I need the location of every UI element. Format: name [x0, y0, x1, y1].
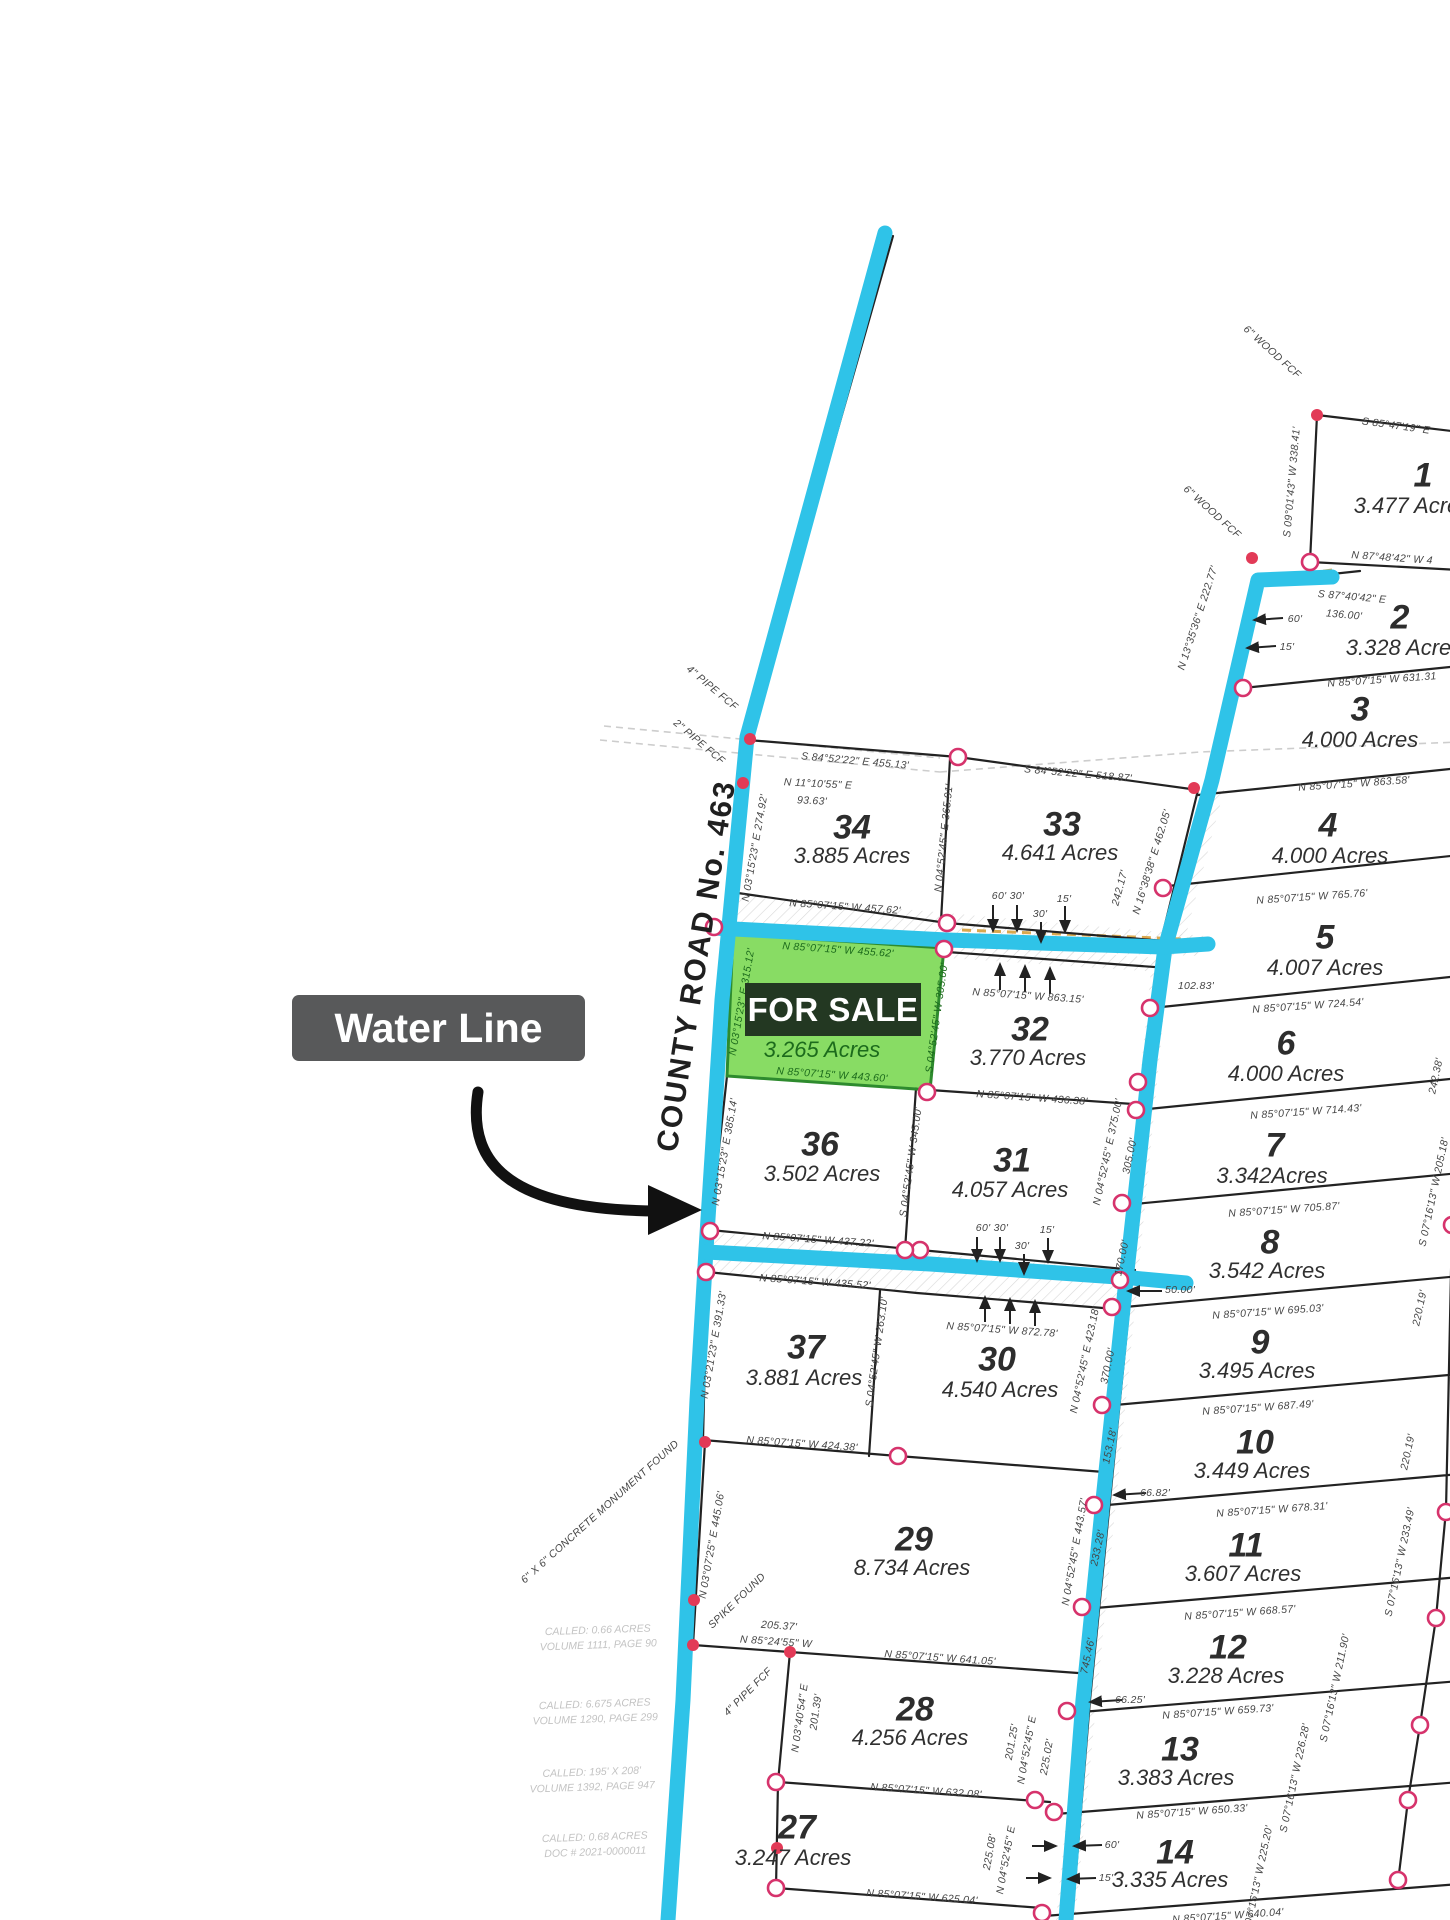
- bearing-label: 60' 30': [976, 1222, 1008, 1234]
- bearing-label: 60' 30': [992, 890, 1024, 902]
- bearing-label: 60': [1105, 1839, 1120, 1851]
- bearing-label: N 85°07'15" W 724.54': [1252, 996, 1364, 1016]
- lot-acres: 3.885 Acres: [794, 843, 911, 869]
- bearing-label: S 07°16'13" W 205.18': [1417, 1136, 1450, 1247]
- bearing-label: N 85°07'15" W 641.05': [884, 1648, 996, 1668]
- bearing-label: N 13°35'36" E 222.77': [1175, 564, 1220, 671]
- bearing-label: 136.00': [1325, 607, 1362, 622]
- bearing-label: 745.46': [1078, 1637, 1097, 1675]
- lot-acres: 4.641 Acres: [1002, 840, 1119, 866]
- bearing-label: N 85°07'15" W 765.76': [1256, 887, 1368, 907]
- bearing-label: N 85°07'15" W 863.58': [1298, 774, 1410, 794]
- bearing-label: 170.00': [1112, 1239, 1131, 1277]
- lot-acres: 3.383 Acres: [1118, 1765, 1235, 1791]
- bearing-label: N 85°07'15" W 437.22': [762, 1230, 874, 1250]
- bearing-label: 153.18': [1100, 1427, 1119, 1465]
- bearing-label: 15': [1099, 1872, 1114, 1884]
- plat-map: 13.477 Acres23.328 Acres34.000 Acres44.0…: [0, 0, 1450, 1920]
- bearing-label: N 85°07'15" W 659.73': [1162, 1702, 1274, 1722]
- bearing-label: 15': [1280, 641, 1295, 653]
- lot-number: 30: [978, 1341, 1016, 1380]
- lot-acres: 3.502 Acres: [764, 1161, 881, 1187]
- for-sale-acres: 3.265 Acres: [764, 1037, 881, 1063]
- lot-number: 36: [801, 1126, 839, 1165]
- lot-number: 7: [1266, 1127, 1285, 1166]
- bearing-label: 66.82': [1140, 1487, 1170, 1499]
- bearing-label: N 85°24'55" W: [740, 1633, 813, 1650]
- bearing-label: 30': [1015, 1240, 1030, 1252]
- lot-acres: 8.734 Acres: [854, 1555, 971, 1581]
- lot-number: 33: [1043, 806, 1081, 845]
- bearing-label: N 85°07'15" W 436.38': [976, 1088, 1088, 1108]
- lot-number: 8: [1261, 1224, 1280, 1263]
- lot-acres: 3.228 Acres: [1168, 1663, 1285, 1689]
- bearing-label: 370.00': [1098, 1347, 1117, 1385]
- lot-acres: 3.328 Acres: [1346, 635, 1450, 661]
- lot-acres: 3.247 Acres: [735, 1845, 852, 1871]
- lot-acres: 3.449 Acres: [1194, 1458, 1311, 1484]
- lot-acres: 4.540 Acres: [942, 1377, 1059, 1403]
- bearing-label: 242.38': [1426, 1057, 1445, 1095]
- bearing-label: 93.63': [797, 794, 828, 808]
- bearing-label: N 04°52'45" E 375.00': [1091, 1098, 1125, 1207]
- lot-number: 29: [895, 1521, 933, 1560]
- bearing-label: N 85°07'15" W 435.52': [759, 1272, 871, 1292]
- called-note: CALLED: 195' X 208'VOLUME 1392, PAGE 947: [529, 1763, 655, 1797]
- bearing-label: N 85°07'15" W 714.43': [1250, 1102, 1362, 1122]
- bearing-label: N 85°07'15" W 632.08': [870, 1781, 982, 1801]
- bearing-label: SPIKE FOUND: [706, 1571, 768, 1631]
- bearing-label: N 85°07'15" W 424.38': [746, 1434, 858, 1454]
- bearing-label: 220.19': [1398, 1433, 1417, 1471]
- lot-number: 9: [1251, 1324, 1270, 1363]
- bearing-label: 4" PIPE FCF: [684, 663, 740, 713]
- lot-acres: 4.000 Acres: [1228, 1061, 1345, 1087]
- bearing-label: N 85°07'15" W 640.04': [1172, 1906, 1284, 1920]
- bearing-label: 2" PIPE FCF: [671, 717, 727, 767]
- bearing-label: N 04°52'45" E 365.91': [932, 783, 955, 892]
- bearing-label: N 03°15'23" E 274.92': [740, 793, 771, 902]
- lot-acres: 3.607 Acres: [1185, 1561, 1302, 1587]
- lot-acres: 3.335 Acres: [1112, 1867, 1229, 1893]
- bearing-label: N 85°07'15" W 455.62': [782, 940, 894, 960]
- bearing-label: 66.25': [1115, 1694, 1145, 1706]
- bearing-label: 225.08': [981, 1833, 999, 1871]
- bearing-label: S 04°52'45" W 263.10': [863, 1296, 890, 1408]
- bearing-label: N 85°07'15" W 457.62': [789, 897, 901, 917]
- lot-number: 27: [778, 1809, 816, 1848]
- lot-number: 6: [1277, 1025, 1296, 1064]
- bearing-label: N 85°07'15" W 650.33': [1136, 1802, 1248, 1822]
- bearing-label: N 03°40'54" E: [789, 1683, 811, 1753]
- bearing-label: S 84°52'22" E 455.13': [801, 750, 910, 771]
- bearing-label: S 09°01'43" W 338.41': [1281, 426, 1303, 538]
- lot-acres: 3.770 Acres: [970, 1045, 1087, 1071]
- lot-number: 1: [1414, 457, 1433, 496]
- plat-text-layer: 13.477 Acres23.328 Acres34.000 Acres44.0…: [0, 0, 1450, 1920]
- bearing-label: S 85°47'19" E: [1361, 415, 1431, 436]
- bearing-label: N 11°10'55" E: [783, 776, 852, 792]
- water-line-callout: Water Line: [292, 995, 585, 1061]
- lot-number: 4: [1319, 807, 1338, 846]
- lot-acres: 4.256 Acres: [852, 1725, 969, 1751]
- bearing-label: N 85°07'15" W 668.57': [1184, 1603, 1296, 1623]
- lot-acres: 4.000 Acres: [1272, 843, 1389, 869]
- bearing-label: 30': [1033, 908, 1048, 920]
- bearing-label: 6" X 6" CONCRETE MONUMENT FOUND: [519, 1438, 682, 1586]
- bearing-label: S 07°16'13" W 233.49': [1383, 1506, 1418, 1617]
- bearing-label: N 85°07'15" W 631.31: [1327, 670, 1437, 690]
- bearing-label: 50.00': [1165, 1284, 1195, 1296]
- lot-number: 10: [1236, 1424, 1274, 1463]
- bearing-label: 225.02': [1038, 1738, 1056, 1776]
- lot-number: 32: [1011, 1011, 1049, 1050]
- lot-number: 13: [1161, 1731, 1199, 1770]
- lot-number: 12: [1209, 1629, 1247, 1668]
- bearing-label: N 03°07'25" E 445.06': [697, 1490, 728, 1599]
- bearing-label: N 85°07'15" W 443.60': [776, 1065, 888, 1085]
- lot-acres: 4.000 Acres: [1302, 727, 1419, 753]
- lot-acres: 4.007 Acres: [1267, 955, 1384, 981]
- bearing-label: S 84°52'22" E 518.87': [1024, 763, 1133, 784]
- bearing-label: N 16°38'38" E 462.05': [1130, 808, 1173, 915]
- called-note: CALLED: 0.66 ACRESVOLUME 1111, PAGE 90: [539, 1621, 657, 1654]
- bearing-label: N 87°48'42" W 4: [1351, 549, 1433, 567]
- bearing-label: 15': [1040, 1224, 1055, 1236]
- bearing-label: 60': [1288, 613, 1303, 625]
- lot-acres: 3.881 Acres: [746, 1365, 863, 1391]
- lot-number: 3: [1351, 691, 1370, 730]
- lot-acres: 3.542 Acres: [1209, 1258, 1326, 1284]
- bearing-label: 6" WOOD FCF: [1241, 323, 1303, 381]
- bearing-label: 201.39': [808, 1693, 825, 1731]
- bearing-label: 220.19': [1410, 1289, 1429, 1327]
- bearing-label: N 85°07'15" W 705.87': [1228, 1200, 1340, 1220]
- bearing-label: N 04°52'45" E 423.18': [1068, 1306, 1102, 1415]
- bearing-label: N 85°07'15" W 695.03': [1212, 1302, 1324, 1322]
- bearing-label: N 03°15'23" E 385.14': [710, 1097, 741, 1206]
- bearing-label: N 85°07'15" W 863.15': [972, 986, 1084, 1006]
- lot-acres: 4.057 Acres: [952, 1177, 1069, 1203]
- lot-number: 34: [833, 809, 871, 848]
- bearing-label: 201.25': [1003, 1723, 1021, 1761]
- bearing-label: S 07°16'13" W 211.90': [1318, 1633, 1353, 1743]
- for-sale-banner: FOR SALE: [745, 983, 921, 1036]
- bearing-label: 233.28': [1088, 1529, 1107, 1567]
- bearing-label: 4" PIPE FCF: [721, 1665, 774, 1718]
- bearing-label: 242.17': [1110, 869, 1131, 907]
- called-note: CALLED: 6.675 ACRESVOLUME 1290, PAGE 299: [532, 1695, 658, 1729]
- bearing-label: N 85°07'15" W 625.04': [866, 1887, 978, 1907]
- bearing-label: N 85°07'15" W 687.49': [1202, 1398, 1314, 1418]
- lot-acres: 3.495 Acres: [1199, 1358, 1316, 1384]
- lot-acres: 3.342Acres: [1216, 1163, 1327, 1189]
- lot-number: 2: [1391, 599, 1410, 638]
- lot-number: 37: [787, 1329, 825, 1368]
- lot-number: 5: [1316, 919, 1335, 958]
- bearing-label: 6" WOOD FCF: [1181, 483, 1243, 541]
- bearing-label: N 85°07'15" W 678.31': [1216, 1500, 1328, 1520]
- bearing-label: S 04°52'45" W 345.00': [897, 1106, 924, 1218]
- lot-number: 31: [993, 1142, 1031, 1181]
- bearing-label: N 04°52'45" E 443.57': [1060, 1497, 1091, 1606]
- bearing-label: S 07°16'13" W 225.20': [1241, 1824, 1276, 1920]
- bearing-label: 205.37': [761, 1619, 798, 1633]
- lot-acres: 3.477 Acres: [1354, 493, 1450, 519]
- bearing-label: 15': [1057, 893, 1072, 905]
- bearing-label: 102.83': [1178, 980, 1214, 992]
- lot-number: 11: [1228, 1527, 1263, 1566]
- bearing-label: S 87°40'42" E: [1317, 588, 1387, 606]
- bearing-label: S 07°16'13" W 226.28': [1278, 1722, 1313, 1833]
- bearing-label: 305.00': [1120, 1137, 1139, 1175]
- called-note: CALLED: 0.68 ACRESDOC # 2021-0000011: [542, 1828, 649, 1861]
- bearing-label: N 85°07'15" W 872.78': [946, 1320, 1058, 1340]
- bearing-label: S 04°52'45" W 305.00': [923, 962, 950, 1074]
- bearing-label: N 03°21'23" E 391.33': [699, 1290, 730, 1399]
- lot-number: 28: [896, 1691, 934, 1730]
